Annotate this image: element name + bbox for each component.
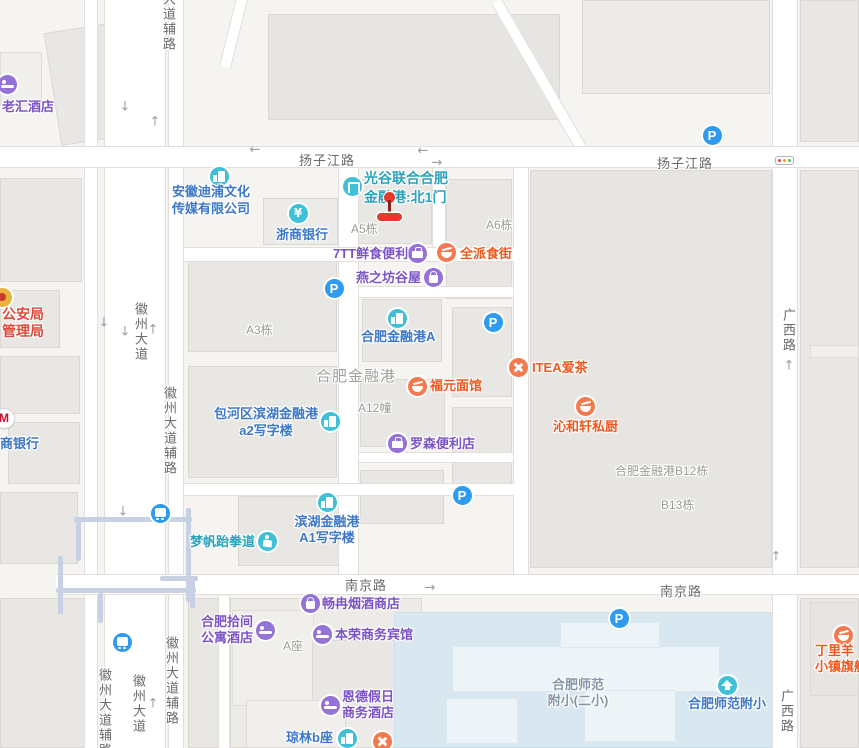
- rail-line: [98, 593, 103, 623]
- road-label: 南京路: [345, 575, 387, 594]
- road-label: 徽州大道辅路: [160, 386, 179, 476]
- building-label: A座: [283, 637, 303, 654]
- building-block: [0, 492, 78, 564]
- restaurant-icon[interactable]: [408, 377, 427, 396]
- road-direction-arrow: ↑: [148, 697, 159, 712]
- bank-yen-icon[interactable]: [289, 204, 308, 223]
- hotel-icon[interactable]: [313, 625, 332, 644]
- road-label: 广西路: [777, 689, 796, 734]
- road-huizhou-avenue: [104, 0, 166, 748]
- school-icon[interactable]: [718, 676, 737, 695]
- parking-icon[interactable]: [484, 313, 503, 332]
- parking-icon[interactable]: [703, 126, 722, 145]
- anhui-dipu-company-label[interactable]: 安徽迪浦文化传媒有限公司: [172, 183, 250, 217]
- mengfan-taekwondo-label[interactable]: 梦帆跆拳道: [190, 534, 255, 550]
- restaurant-icon[interactable]: [437, 243, 456, 262]
- road-label: 南京路: [660, 581, 702, 600]
- bus-station-icon[interactable]: [151, 504, 170, 523]
- road-label: 徽州大道辅路: [95, 668, 114, 748]
- rail-line: [190, 576, 195, 608]
- parking-icon[interactable]: [453, 486, 472, 505]
- selected-location-marker-base: [377, 213, 402, 221]
- zheshang-bank-label[interactable]: 浙商银行: [276, 227, 328, 243]
- rail-line: [58, 556, 63, 614]
- building-label: B13栋: [661, 496, 694, 513]
- hotel-icon[interactable]: [256, 621, 275, 640]
- fuyuan-noodles-label[interactable]: 福元面馆: [430, 378, 482, 394]
- road-direction-arrow: ↓: [99, 316, 110, 331]
- road-label: 扬子江路: [657, 153, 713, 172]
- ende-holiday-hotel-label[interactable]: 恩德假日商务酒店: [342, 689, 394, 721]
- road-direction-arrow: ↑: [148, 323, 159, 338]
- shifan-primary-label[interactable]: 合肥师范附小: [688, 696, 766, 712]
- baidu-map-canvas[interactable]: 扬子江路扬子江路南京路南京路广西路广西路大道辅路徽州大道徽州大道辅路徽州大道辅路…: [0, 0, 859, 748]
- road-label: 徽州大道辅路: [162, 636, 181, 726]
- restaurant-icon[interactable]: [576, 397, 595, 416]
- qionglin-b-label[interactable]: 琼林b座: [286, 730, 333, 746]
- lawson-store-label[interactable]: 罗森便利店: [410, 436, 475, 452]
- restaurant-icon[interactable]: [509, 358, 528, 377]
- road-direction-arrow: ←: [250, 143, 261, 158]
- road-direction-arrow: ←: [418, 144, 429, 159]
- area-label: 合肥金融港: [316, 365, 396, 386]
- police-bureau-label[interactable]: 公安局管理局: [2, 306, 44, 340]
- road-label: 扬子江路: [299, 150, 355, 169]
- road-direction-arrow: ↓: [120, 100, 131, 115]
- road-direction-arrow: →: [425, 581, 436, 596]
- road-direction-arrow: ↑: [771, 550, 782, 565]
- road-label: 大道辅路: [159, 0, 178, 52]
- building-block: [0, 178, 82, 282]
- school-area-label: 合肥师范附小(二小): [548, 677, 609, 709]
- building-label: A5栋: [351, 220, 378, 237]
- restaurant-icon[interactable]: [373, 732, 392, 748]
- shop-icon[interactable]: [408, 244, 427, 263]
- hotel-icon[interactable]: [321, 696, 340, 715]
- person-sport-icon[interactable]: [258, 532, 277, 551]
- building-block: [810, 345, 859, 358]
- campus-building: [446, 698, 518, 744]
- gate-icon[interactable]: [343, 177, 362, 196]
- 7tt-convenience-label[interactable]: 7TT鲜食便利: [333, 246, 408, 262]
- dingliyang-flagship-label[interactable]: 丁里羊小镇旗舰店: [815, 643, 859, 675]
- shopping-bag-icon[interactable]: [301, 594, 320, 613]
- laohui-hotel-label[interactable]: 老汇酒店: [2, 99, 54, 115]
- parking-icon[interactable]: [325, 279, 344, 298]
- binhu-a1-office-label[interactable]: 滨湖金融港A1写字楼: [294, 514, 359, 546]
- building-block: [446, 179, 512, 299]
- baohe-a2-office-label[interactable]: 包河区滨湖金融港a2写字楼: [214, 405, 318, 439]
- financial-port-north-gate-label[interactable]: 光谷联合合肥金融港:北1门: [364, 169, 448, 207]
- building-icon[interactable]: [338, 729, 357, 748]
- building-block: [0, 598, 85, 748]
- road-label: 广西路: [779, 308, 798, 353]
- building-block: [0, 356, 80, 414]
- hotel-icon[interactable]: [0, 75, 17, 94]
- financial-port-a-label[interactable]: 合肥金融港A: [361, 329, 435, 345]
- building-block: [800, 0, 859, 142]
- road-direction-arrow: →: [432, 156, 443, 171]
- road-minor: [359, 452, 513, 463]
- traffic-light-icon: [775, 156, 794, 165]
- qinhexuan-kitchen-label[interactable]: 沁和轩私厨: [553, 419, 618, 435]
- road-frontage-west: [84, 0, 98, 748]
- yanzhifang-guwu-label[interactable]: 燕之坊谷屋: [356, 270, 421, 286]
- road-direction-arrow: ↑: [150, 115, 161, 130]
- building-label: A6栋: [486, 216, 513, 233]
- building-icon[interactable]: [388, 309, 407, 328]
- cmb-bank-label[interactable]: 商银行: [0, 436, 39, 452]
- rail-line: [76, 517, 81, 561]
- road-direction-arrow: ↑: [784, 359, 795, 374]
- restaurant-icon[interactable]: [834, 626, 853, 645]
- building-label: A3栋: [246, 321, 273, 338]
- rail-line: [56, 588, 196, 593]
- road-guangxi: [772, 0, 798, 748]
- changran-tobacco-label[interactable]: 畅冉烟酒商店: [322, 596, 400, 612]
- building-block: [360, 470, 444, 524]
- shopping-bag-icon[interactable]: [424, 268, 443, 287]
- building-label: A12幢: [358, 399, 391, 416]
- shop-icon[interactable]: [388, 434, 407, 453]
- shijian-apartment-hotel-label[interactable]: 合肥拾间公寓酒店: [201, 614, 253, 646]
- road-minor: [359, 286, 513, 298]
- bus-station-icon[interactable]: [113, 633, 132, 652]
- road-minor: [219, 0, 249, 68]
- building-block: [8, 422, 80, 484]
- road-direction-arrow: ↓: [120, 325, 131, 340]
- benrong-hotel-label[interactable]: 本荣商务宾馆: [335, 627, 413, 643]
- building-block: [800, 170, 859, 568]
- building-label: 合肥金融港B12栋: [615, 462, 708, 479]
- parking-icon[interactable]: [610, 609, 629, 628]
- itea-tea-label[interactable]: ITEA爱茶: [532, 360, 588, 376]
- rail-line: [74, 517, 192, 522]
- building-block: [582, 0, 770, 94]
- cmb-logo-icon[interactable]: [0, 409, 14, 428]
- road-direction-arrow: ↓: [118, 505, 129, 520]
- building-icon[interactable]: [321, 412, 340, 431]
- building-icon[interactable]: [318, 493, 337, 512]
- road-yangzijiang: [0, 146, 859, 168]
- quanpai-food-street-label[interactable]: 全派食街: [460, 246, 512, 262]
- road-label: 徽州大道: [129, 674, 148, 734]
